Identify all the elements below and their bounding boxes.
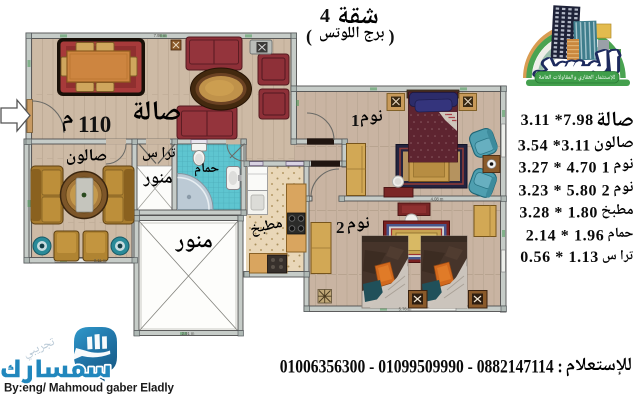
svg-text:3.27 * 4.70 1: 3.27 * 4.70 1 — [518, 159, 610, 176]
svg-text:3.11 *7.98: 3.11 *7.98 — [521, 112, 594, 129]
svg-text:0.56 * 1.13: 0.56 * 1.13 — [520, 249, 599, 266]
svg-text:1: 1 — [351, 111, 360, 130]
svg-text:4.08 m: 4.08 m — [431, 197, 444, 202]
svg-text:01006356300 - 01099509990 - 08: 01006356300 - 01099509990 - 0882147114 : — [280, 358, 563, 378]
svg-text:3.23 * 5.80 2: 3.23 * 5.80 2 — [518, 182, 610, 199]
svg-text:5.76 m: 5.76 m — [399, 306, 412, 311]
svg-text:2: 2 — [336, 218, 345, 237]
svg-text:3.54 *3.11: 3.54 *3.11 — [518, 137, 591, 154]
svg-text:2.91 m: 2.91 m — [182, 331, 195, 336]
svg-text:(: ( — [306, 26, 312, 47]
svg-text:2.14 * 1.96: 2.14 * 1.96 — [526, 227, 605, 244]
svg-text:110: 110 — [78, 112, 111, 137]
svg-text:): ) — [389, 26, 395, 47]
svg-text:4: 4 — [320, 5, 330, 27]
svg-text:3.28 * 1.80: 3.28 * 1.80 — [519, 204, 598, 221]
svg-text:By:eng/ Mahmoud gaber Eladly: By:eng/ Mahmoud gaber Eladly — [4, 382, 174, 395]
svg-text:3.11 m: 3.11 m — [94, 258, 107, 263]
svg-text:7.98 m: 7.98 m — [154, 33, 167, 38]
